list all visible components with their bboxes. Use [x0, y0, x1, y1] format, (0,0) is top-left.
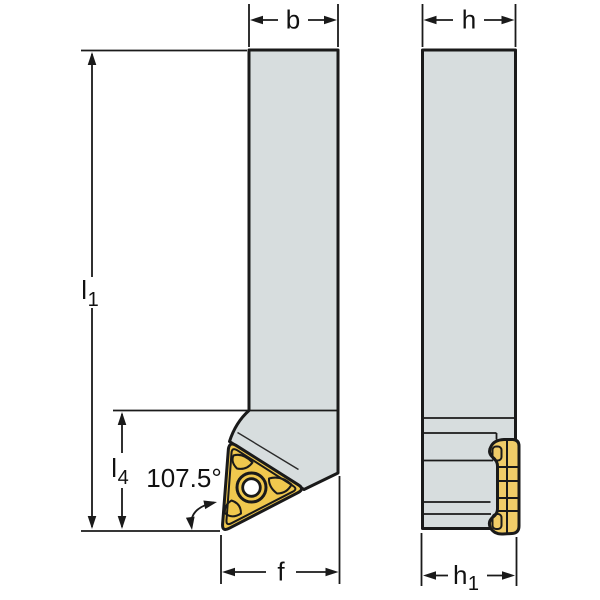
dim-b: b: [249, 4, 338, 47]
dim-h-label: h: [462, 5, 476, 35]
arrowhead-right: [326, 568, 339, 577]
arrowhead-left: [250, 16, 263, 25]
arrowhead-up: [118, 412, 127, 425]
arrowhead-right: [324, 16, 337, 25]
arrowhead-down: [88, 516, 97, 529]
dim-l1: l1: [81, 51, 247, 532]
dim-h: h: [423, 4, 516, 47]
dim-l4-label: l4: [111, 453, 128, 489]
arrowhead-right: [502, 571, 515, 580]
angle-arc: [191, 503, 214, 527]
arrowhead-down: [118, 516, 127, 529]
angle-annotation: 107.5°: [146, 463, 221, 530]
side-view: [423, 50, 520, 534]
dim-l1-label: l1: [81, 275, 98, 311]
angle-label: 107.5°: [146, 463, 221, 493]
arrowhead-left: [423, 571, 436, 580]
arrowhead-up: [203, 501, 217, 510]
technical-drawing: b h l1 l4 107.5° f: [0, 0, 600, 600]
dim-b-label: b: [286, 5, 300, 35]
dim-h1: h1: [422, 533, 517, 595]
front-view: [223, 50, 338, 529]
holder-shank-front: [230, 50, 339, 490]
arrowhead-left: [222, 568, 235, 577]
dim-h1-label: h1: [453, 560, 479, 595]
dim-f-label: f: [277, 557, 285, 587]
arrowhead-down: [186, 517, 195, 530]
arrowhead-up: [88, 52, 97, 65]
insert-hole-inner: [243, 479, 261, 497]
arrowhead-left: [424, 16, 437, 25]
arrowhead-right: [502, 16, 515, 25]
